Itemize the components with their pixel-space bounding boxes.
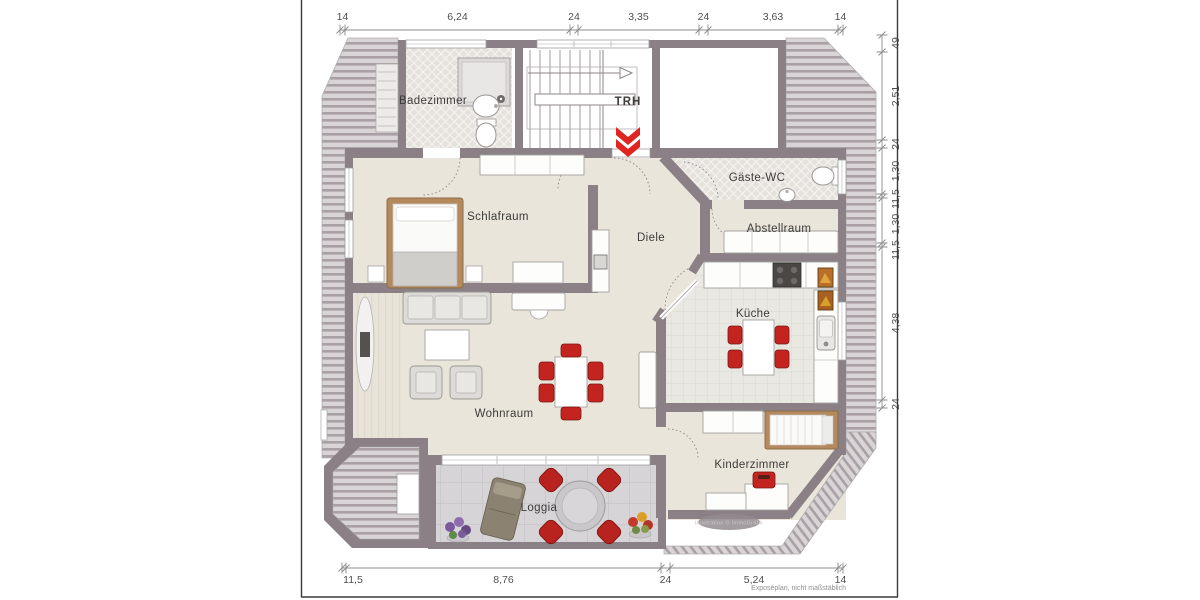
wc-sink [779,189,795,202]
bay-window [324,438,428,548]
dim-label: 11,5 [343,574,363,586]
dim-label: 2,51 [890,86,902,107]
kids-bed [765,411,838,449]
sideboard [639,352,656,408]
window-schlafraum-upper [345,168,353,212]
window-kueche [838,302,846,360]
dim-label: 14 [337,11,349,23]
nightstand-right [466,266,482,282]
dim-label: 1,30 [890,214,902,235]
dim-label: 24 [660,574,672,586]
floor-neighbor-room [660,48,778,148]
dim-label: 8,76 [493,574,514,586]
window-schlafraum-lower [345,220,353,258]
armchair-1 [410,366,442,399]
window-loggia-doors [442,455,650,465]
dim-label: 24 [698,11,710,23]
footnote: Exposéplan, nicht maßstäblich [751,585,846,592]
dormer-window [321,410,327,440]
sofa [403,292,491,324]
dim-label: 24 [890,138,902,150]
kids-sideboard [706,493,746,510]
room-label-abstellraum: Abstellraum [747,223,812,235]
dimension-bottom: 11,5 8,76 24 5,24 14 [339,563,847,587]
room-label-schlafraum: Schlafraum [467,211,529,223]
floor-lamp [356,297,374,391]
floorplan-page: Badezimmer TRH Schlafraum Diele Gäste-WC… [0,0,1200,600]
floorplan-canvas: Badezimmer TRH Schlafraum Diele Gäste-WC… [0,0,1200,600]
schlafraum-desk [513,262,563,283]
window-badezimmer [406,40,486,48]
room-label-loggia: Loggia [521,502,558,514]
dining-table [555,357,587,407]
dim-label: 11,5 [890,189,902,209]
dim-label: 4,38 [890,313,902,334]
room-label-kinderzimmer: Kinderzimmer [714,459,789,471]
dim-label: 3,35 [628,11,649,23]
radiator [376,64,398,132]
bathroom-sink [473,95,499,117]
dimension-top: 14 6,24 24 3,35 24 3,63 14 [337,11,847,36]
room-label-diele: Diele [637,232,665,244]
window-gaeste-wc [838,160,846,194]
nightstand-left [368,266,384,282]
dim-label: 14 [835,11,847,23]
dim-label: 24 [890,398,902,410]
bathroom-toilet [476,119,496,147]
kids-chair [753,472,775,488]
wardrobe [480,155,584,175]
room-label-trh: TRH [615,96,642,108]
kids-shelf [703,411,763,433]
room-label-gaeste-wc: Gäste-WC [729,172,785,184]
coffee-table [425,330,469,360]
dim-label: 6,24 [447,11,468,23]
room-label-wohnraum: Wohnraum [475,408,534,420]
loggia-table [555,481,605,531]
dim-label: 49 [890,37,902,49]
room-label-badezimmer: Badezimmer [399,95,467,107]
dim-label: 24 [568,11,580,23]
wc-toilet [812,167,838,185]
dim-label: 3,63 [763,11,784,23]
diele-cabinet [592,230,609,292]
stove [773,263,801,287]
room-label-kueche: Küche [736,308,770,320]
kitchen-table [743,320,774,375]
dim-label: 1,30 [890,161,902,182]
bay-window-glass [397,474,419,514]
kitchen-sink [817,316,835,350]
dim-label: 11,5 [890,240,902,260]
armchair-2 [450,366,482,399]
window-trh [537,40,649,48]
double-bed [387,198,463,288]
watermark-text: Illustration © ImmoGrafik [695,520,763,527]
